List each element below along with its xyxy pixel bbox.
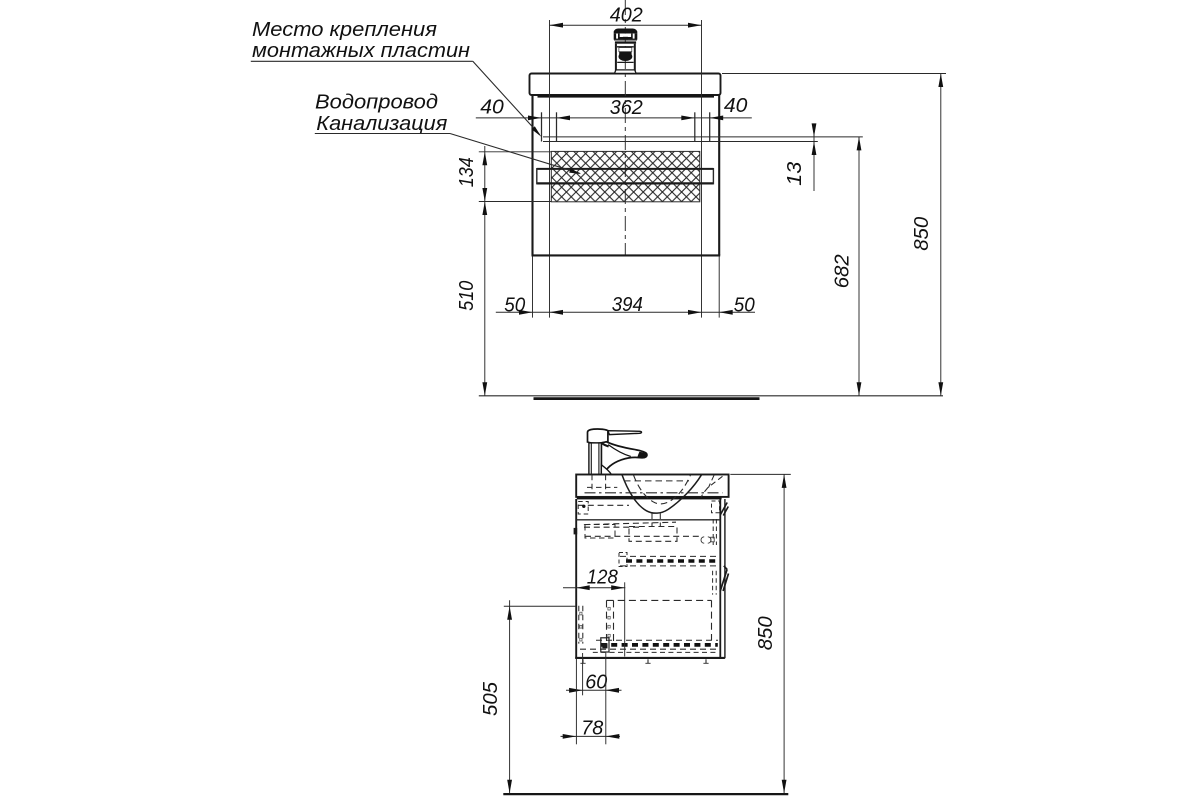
svg-text:Место крепления: Место крепления [252,19,437,41]
svg-text:850: 850 [755,616,777,650]
svg-text:Канализация: Канализация [316,113,447,135]
svg-text:850: 850 [911,217,933,251]
svg-text:50: 50 [734,294,755,316]
svg-text:134: 134 [456,157,478,187]
svg-text:402: 402 [610,4,643,26]
svg-text:510: 510 [456,281,478,311]
svg-text:13: 13 [784,162,806,186]
svg-text:78: 78 [581,717,603,739]
svg-text:монтажных пластин: монтажных пластин [252,40,470,62]
svg-text:394: 394 [612,294,643,316]
svg-text:505: 505 [480,681,502,716]
svg-text:Водопровод: Водопровод [315,92,438,114]
svg-text:128: 128 [587,566,618,588]
svg-text:40: 40 [724,95,748,117]
svg-text:50: 50 [504,294,525,316]
svg-text:40: 40 [480,96,504,118]
svg-text:60: 60 [585,672,607,694]
svg-text:682: 682 [831,254,853,288]
svg-text:362: 362 [610,97,643,119]
